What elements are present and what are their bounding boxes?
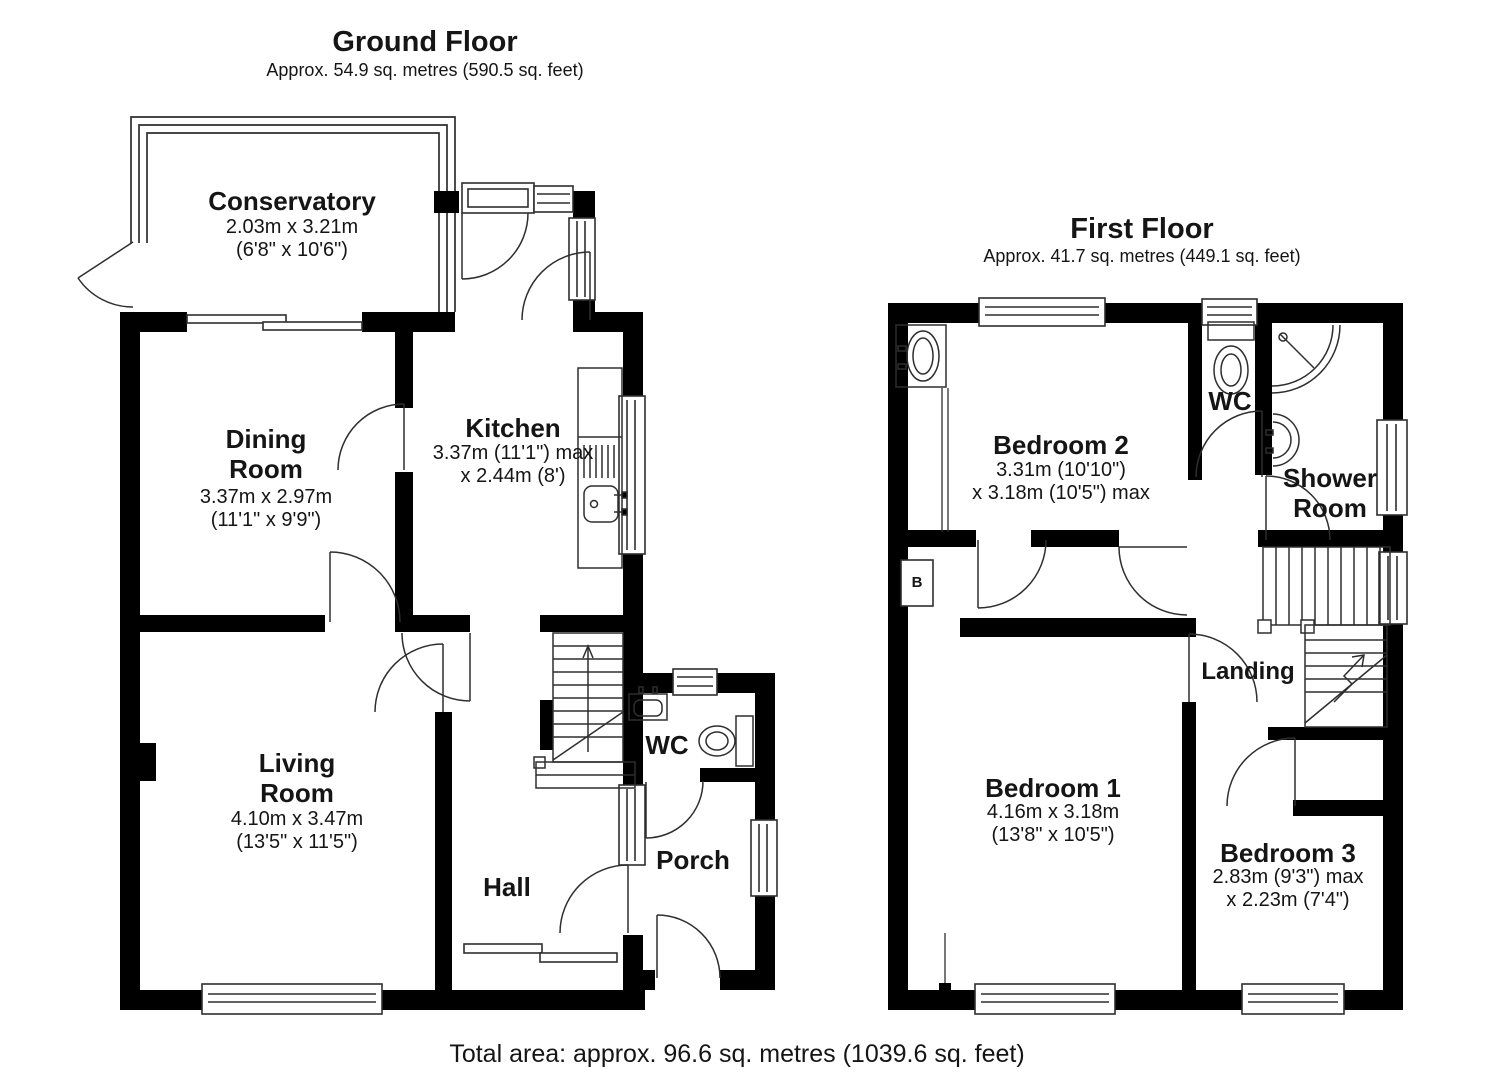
landing-window [1379,552,1407,624]
rear-door-swing [462,213,528,279]
rear-lobby-top-window [534,186,573,212]
corner-shower-icon [1272,325,1340,393]
room-dims-living-2: (13'5" x 11'5") [236,831,358,854]
room-label-conservatory: Conservatory [208,186,376,216]
room-label-living-room: Living Room [232,748,362,808]
room-label-bedroom-3: Bedroom 3 [1220,838,1356,868]
rear-door-panel [462,183,534,213]
wc-top-window [673,669,717,695]
porch-side-window [751,820,777,896]
room-label-hall: Hall [483,872,531,902]
room-dims-conservatory-2: (6'8" x 10'6") [236,239,348,262]
porch-door [657,915,720,978]
room-dims-bedroom3-1: 2.83m (9'3") max [1213,866,1364,889]
room-label-kitchen: Kitchen [465,413,560,443]
room-dims-dining-2: (11'1" x 9'9") [211,509,321,532]
bedroom2-door [978,540,1046,608]
living-room-window [202,984,382,1014]
dining-kitchen-door [338,404,404,470]
bedroom2-cupboard [942,388,948,532]
room-label-bedroom-1: Bedroom 1 [985,773,1121,803]
kitchen-window [619,396,645,554]
first-wc-window [1202,299,1257,325]
floorplan-canvas: Ground Floor Approx. 54.9 sq. metres (59… [0,0,1485,1080]
room-label-ground-wc: WC [645,730,688,760]
floorplan-drawing [0,0,1485,1080]
room-dims-kitchen-2: x 2.44m (8') [461,465,566,488]
patio-sliding-door [187,315,362,330]
boiler-label: B [912,575,923,591]
corridor-door [1119,547,1187,615]
room-dims-living-1: 4.10m x 3.47m [231,808,363,831]
room-label-dining-room: Dining Room [196,424,336,484]
room-dims-kitchen-1: 3.37m (11'1") max [433,442,594,465]
kitchen-hall-door [402,633,470,701]
ground-floor-subtitle: Approx. 54.9 sq. metres (590.5 sq. feet) [266,60,583,81]
room-dims-dining-1: 3.37m x 2.97m [200,486,332,509]
ground-toilet-icon [699,716,753,766]
room-label-bedroom-2: Bedroom 2 [993,430,1129,460]
room-dims-bedroom1-1: 4.16m x 3.18m [987,801,1119,824]
ground-walls [120,191,775,1010]
wc-door [646,781,703,838]
first-floor-subtitle: Approx. 41.7 sq. metres (449.1 sq. feet) [983,246,1300,267]
first-wc-door [1196,411,1262,477]
ground-floor-plan [78,117,777,1014]
dining-living-opening [330,552,400,622]
room-dims-bedroom2-1: 3.31m (10'10") [996,459,1126,482]
first-toilet-icon [1208,322,1254,394]
room-label-porch: Porch [656,845,730,875]
bedroom3-window [1242,984,1344,1014]
room-dims-bedroom2-2: x 3.18m (10'5") max [972,482,1150,505]
chimney-breast [140,743,156,781]
ground-windows [187,183,777,1014]
hall-sidelight-window [619,785,645,865]
room-label-shower-room: Shower Room [1255,463,1405,523]
conservatory-door [78,242,133,307]
bedroom2-window [979,298,1105,326]
room-dims-conservatory-1: 2.03m x 3.21m [226,216,358,239]
room-label-landing: Landing [1201,658,1294,685]
living-hall-door [375,644,443,712]
total-area-text: Total area: approx. 96.6 sq. metres (103… [449,1040,1024,1068]
hall-cupboard [464,944,617,962]
rear-lobby-side-window [569,218,595,300]
ground-floor-title: Ground Floor [332,26,517,58]
front-door [560,865,628,933]
bedroom1-window [975,984,1115,1014]
first-stairs-icon [1258,547,1390,727]
room-dims-bedroom1-2: (13'8" x 10'5") [991,824,1114,847]
first-floor-title: First Floor [1070,213,1213,245]
room-dims-bedroom3-2: x 2.23m (7'4") [1226,889,1349,912]
bedroom3-door [1227,738,1295,806]
room-label-first-wc: WC [1208,386,1251,416]
bedroom1-chimney-line [939,933,951,990]
